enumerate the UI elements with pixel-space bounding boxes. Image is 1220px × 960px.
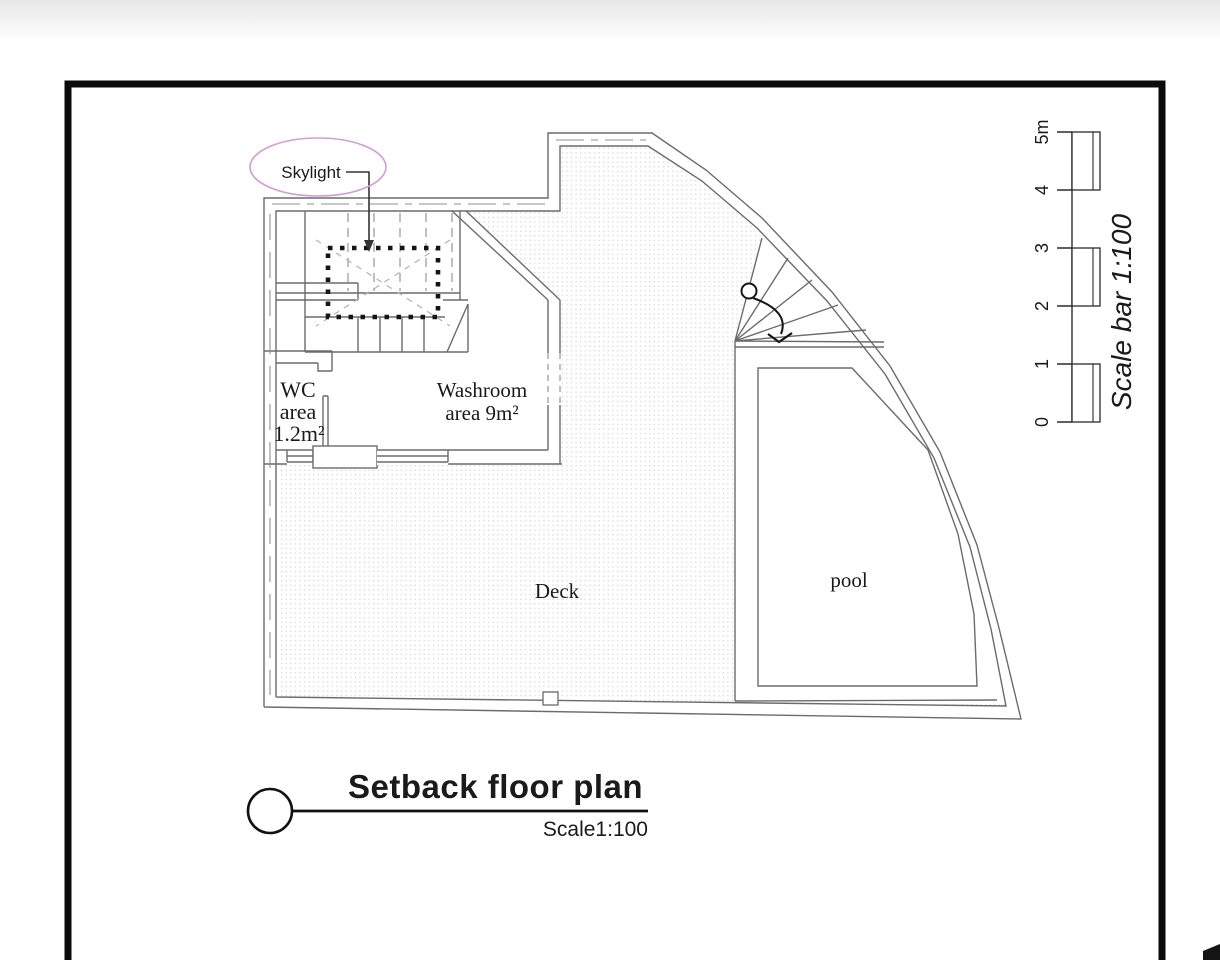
drawing-scale: Scale1:100 <box>543 818 648 841</box>
scale-tick-3: 3 <box>1032 243 1052 253</box>
scale-tick-2: 2 <box>1032 301 1052 311</box>
window-sill-block <box>313 446 377 468</box>
scale-tick-4: 4 <box>1032 185 1052 195</box>
deck-label: Deck <box>535 579 580 603</box>
pool-label: pool <box>830 568 868 592</box>
drawing-title: Setback floor plan <box>348 768 643 805</box>
washroom-label-line2: area 9m² <box>445 401 518 425</box>
windows <box>287 446 448 468</box>
page-corner-mark <box>1203 944 1220 960</box>
washroom-label-line1: Washroom <box>437 378 527 402</box>
deck-edge-pier <box>543 692 558 705</box>
skylight-label: Skylight <box>281 163 341 182</box>
floor-plan-drawing: WC area 1.2m² Washroom area 9m² Deck poo… <box>0 0 1220 960</box>
scale-tick-0: 0 <box>1032 417 1052 427</box>
title-bubble-icon <box>248 789 292 833</box>
wc-label-line3: 1.2m² <box>273 421 325 446</box>
stair-start-marker <box>742 284 757 299</box>
scale-bar-title: Scale bar 1:100 <box>1106 214 1137 411</box>
scale-tick-1: 1 <box>1032 359 1052 369</box>
page: WC area 1.2m² Washroom area 9m² Deck poo… <box>0 0 1220 960</box>
scale-tick-5: 5m <box>1032 119 1052 144</box>
